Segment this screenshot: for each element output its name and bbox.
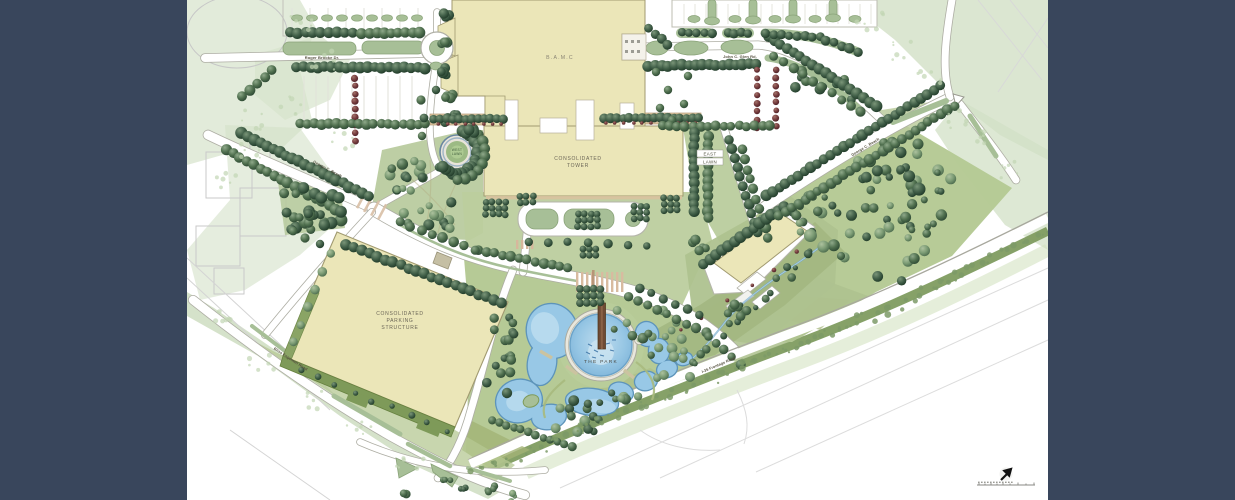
- svg-text:CONSOLIDATED: CONSOLIDATED: [376, 311, 423, 317]
- svg-text:B.A.M.C: B.A.M.C: [546, 55, 574, 61]
- svg-text:CONSOLIDATED: CONSOLIDATED: [554, 156, 601, 162]
- svg-text:STRUCTURE: STRUCTURE: [381, 325, 418, 331]
- svg-text:Roger Brooke Dr.: Roger Brooke Dr.: [305, 55, 340, 60]
- svg-text:EAST: EAST: [703, 152, 716, 157]
- svg-text:TOWER: TOWER: [567, 163, 589, 169]
- svg-text:LAWN: LAWN: [452, 152, 463, 156]
- svg-text:PARKING: PARKING: [386, 318, 413, 324]
- svg-text:John C. Glen Rd.: John C. Glen Rd.: [723, 54, 757, 59]
- svg-text:LAWN: LAWN: [703, 160, 717, 165]
- svg-text:THE PARK: THE PARK: [584, 359, 618, 365]
